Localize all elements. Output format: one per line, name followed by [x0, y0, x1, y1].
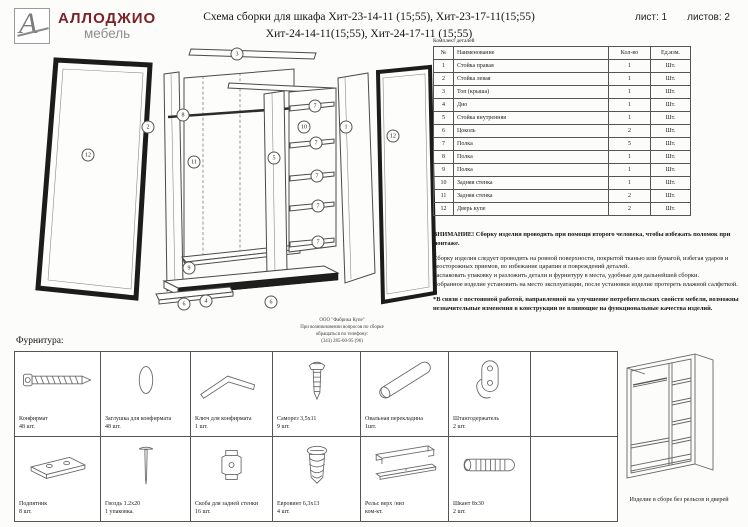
part-balloon: 6 [178, 298, 191, 311]
part-balloon: 12 [82, 149, 95, 162]
table-row: 1Стойка правая1Шт. [434, 60, 691, 73]
side-panel-right [338, 73, 375, 283]
brand-logo: А АЛЛОДЖИО мебель [14, 8, 156, 44]
euro-screw-icon [275, 439, 358, 491]
table-row: 12Дверь купе2Шт. [434, 203, 691, 216]
self-tapping-screw-icon [275, 354, 358, 406]
rail-icon [363, 439, 446, 491]
assembly-notes: ВНИМАНИЕ! Сборку изделия проводить при п… [433, 231, 741, 320]
table-row: 2Стойка левая1Шт. [434, 73, 691, 86]
table-row: 9Полка1Шт. [434, 164, 691, 177]
hardware-item-hex-key: Ключ для конфирмата1 шт. [191, 352, 273, 437]
part-balloon: 11 [188, 156, 201, 169]
warning-note: ВНИМАНИЕ! Сборку изделия проводить при п… [433, 231, 741, 249]
oval-rod-icon [363, 354, 446, 406]
hardware-item-self-tapping-screw: Саморез 3,5х119 шт. [273, 352, 361, 437]
part-balloon: 7 [310, 137, 323, 150]
hardware-item-rail: Рельс верх /низком-кт. [361, 437, 449, 522]
part-balloon: 12 [387, 130, 400, 143]
sheet-info: лист: 1 листов: 2 [635, 12, 730, 23]
nail-icon [103, 439, 188, 491]
hardware-cell-empty [531, 437, 618, 522]
parts-list: Комплект деталей № Наименование Кол-во Е… [433, 38, 691, 216]
door-right [378, 67, 435, 302]
table-row: 7Полка5Шт. [434, 138, 691, 151]
part-balloon: 7 [312, 200, 325, 213]
hardware-table: Конфирмат48 шт. Заглушка для конфирмата4… [14, 351, 618, 522]
sheet-number: лист: 1 [635, 12, 667, 23]
foot-pad-icon [17, 439, 98, 491]
assembled-view-caption: Изделие в сборе без рельсов и дверей [617, 496, 741, 503]
part-balloon: 7 [312, 236, 325, 249]
hex-key-icon [193, 354, 270, 406]
parts-table: № Наименование Кол-во Ед.изм. 1Стойка пр… [433, 46, 691, 216]
hardware-item-back-panel-bracket: Скоба для задней стенки16 шт. [191, 437, 273, 522]
table-row: 11Задняя стенка2Шт. [434, 190, 691, 203]
table-row: 3Топ (крыша)1Шт. [434, 86, 691, 99]
exploded-diagram: 12 2 8 11 9 3 5 10 7 7 7 7 7 1 12 6 4 6 [18, 42, 438, 324]
hardware-item-euro-screw: Евровинт 6,3х134 шт. [273, 437, 361, 522]
part-balloon: 5 [268, 152, 281, 165]
part-balloon: 10 [298, 121, 311, 134]
part-balloon: 8 [177, 109, 190, 122]
factory-contact-note: ООО "Фабрика Купе" При возникновении воп… [252, 317, 432, 345]
confirmat-screw-icon [17, 354, 98, 406]
part-balloon: 7 [311, 170, 324, 183]
hardware-item-foot-pad: Подпятник8 шт. [15, 437, 101, 522]
parts-list-caption: Комплект деталей [433, 38, 691, 44]
part-balloon: 7 [309, 100, 322, 113]
hardware-item-oval-rod: Овальная перекладина1шт. [361, 352, 449, 437]
brand-name: АЛЛОДЖИО [58, 11, 156, 27]
part-balloon: 9 [183, 262, 196, 275]
rod-holder-icon [451, 354, 528, 406]
hardware-cell-empty [531, 352, 618, 437]
cap-icon [103, 354, 188, 406]
part-balloon: 4 [200, 295, 213, 308]
part-balloon: 3 [231, 48, 244, 61]
table-row: 4Дно1Шт. [434, 99, 691, 112]
bracket-icon [193, 439, 270, 491]
brand-monogram-icon: А [14, 8, 50, 44]
hardware-item-nail: Гвоздь 1.2х201 упаковка. [101, 437, 191, 522]
table-row: 6Цоколь2Шт. [434, 125, 691, 138]
door-left [38, 60, 150, 298]
part-balloon: 6 [265, 296, 278, 309]
hardware-heading: Фурнитура: [16, 336, 64, 346]
dowel-icon [451, 439, 528, 491]
assembly-instruction-sheet: А АЛЛОДЖИО мебель Схема сборки для шкафа… [0, 0, 748, 527]
brand-subtitle: мебель [58, 27, 156, 41]
hardware-item-rod-holder: Штангодержатель2 шт. [449, 352, 531, 437]
hardware-item-cap: Заглушка для конфирмата48 шт. [101, 352, 191, 437]
table-row: 5Стойка внутренняя1Шт. [434, 112, 691, 125]
inner-divider-panel [264, 91, 287, 275]
side-panel-left [164, 72, 183, 291]
hardware-item-confirmat: Конфирмат48 шт. [15, 352, 101, 437]
part-balloon: 2 [142, 121, 155, 134]
assembled-wardrobe-drawing [617, 344, 737, 489]
parts-table-header: № Наименование Кол-во Ед.изм. [434, 47, 691, 60]
table-row: 10Задняя стенка1Шт. [434, 177, 691, 190]
part-balloon: 1 [340, 121, 353, 134]
sheets-total: листов: 2 [687, 12, 730, 23]
assembled-view: Изделие в сборе без рельсов и дверей [617, 344, 741, 503]
table-row: 8Полка1Шт. [434, 151, 691, 164]
hardware-item-dowel: Шкант 8х302 шт. [449, 437, 531, 522]
